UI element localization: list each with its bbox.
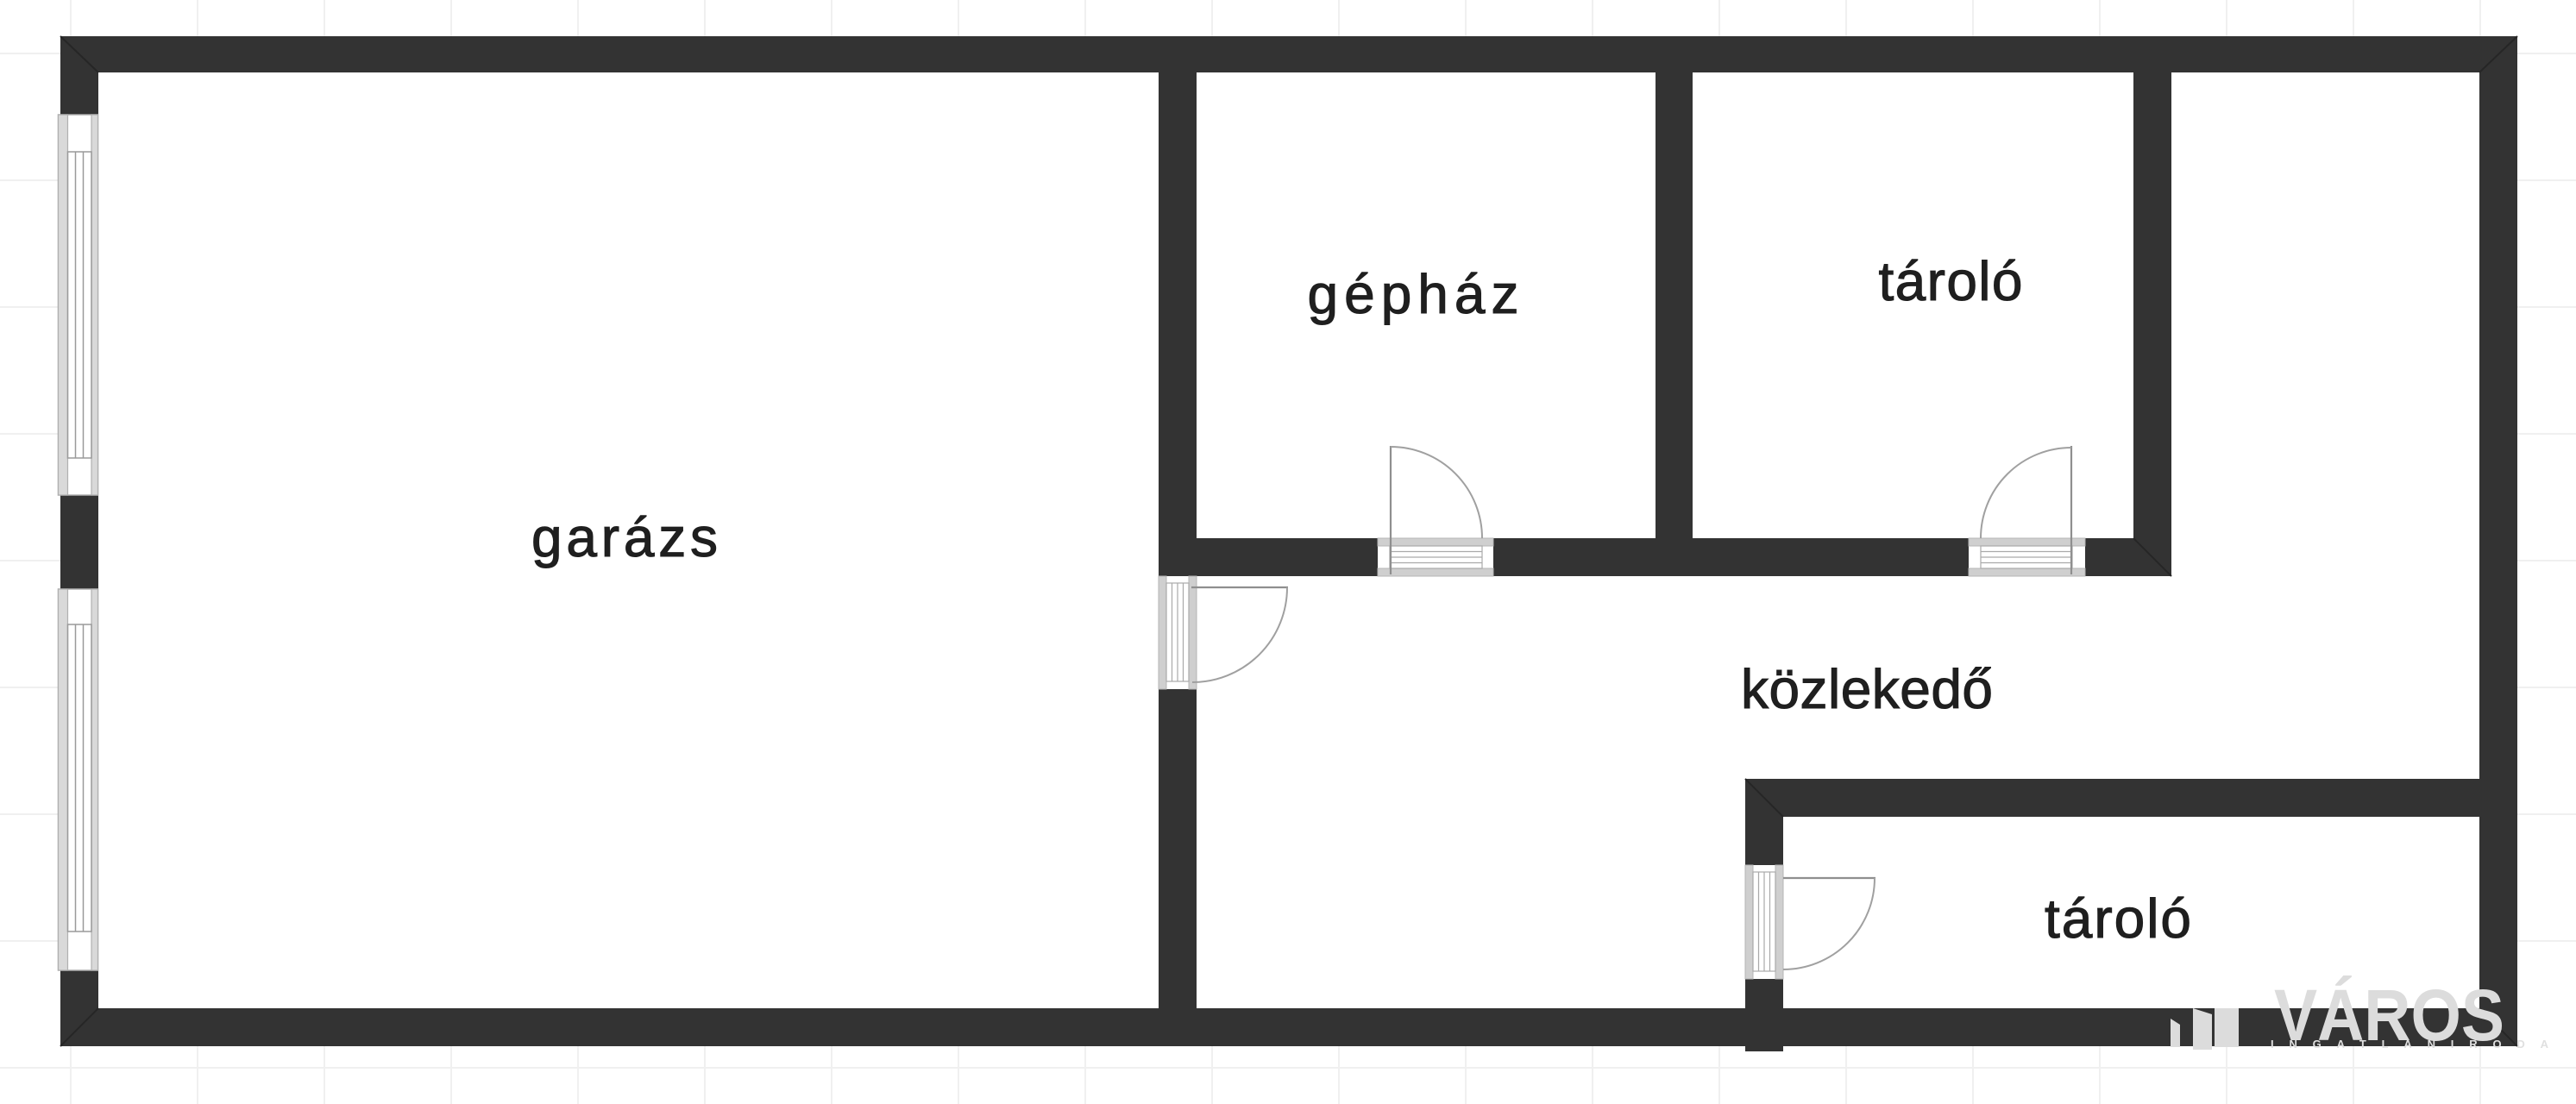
svg-text:tároló: tároló (1879, 250, 2023, 312)
svg-text:tároló: tároló (2045, 888, 2191, 950)
svg-text:közlekedő: közlekedő (1741, 658, 1993, 720)
svg-text:garázs: garázs (531, 506, 718, 568)
